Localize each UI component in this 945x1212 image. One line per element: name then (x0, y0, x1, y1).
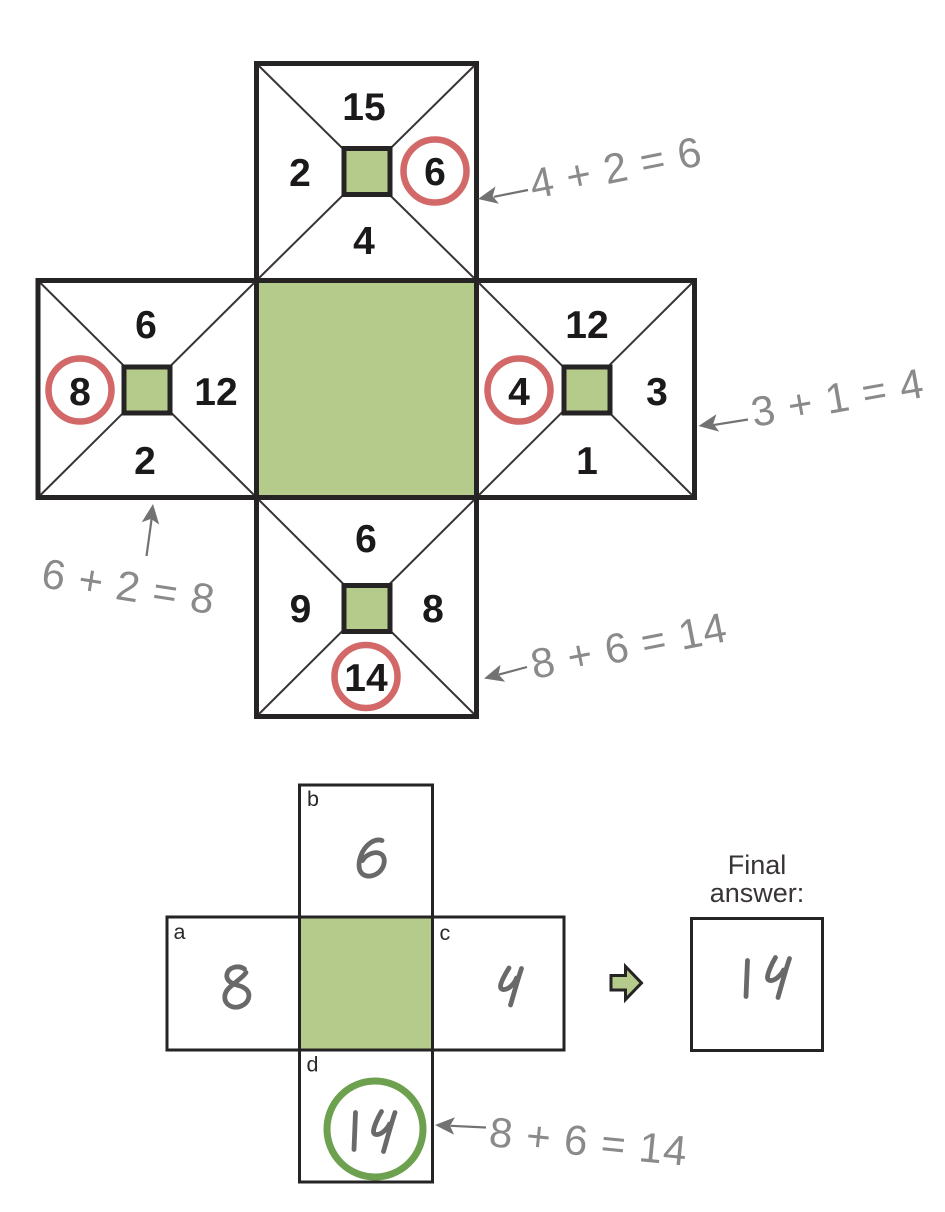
svg-text:answer:: answer: (710, 878, 805, 908)
svg-text:6: 6 (424, 151, 446, 194)
svg-text:8: 8 (69, 371, 91, 414)
svg-text:4 + 2 = 6: 4 + 2 = 6 (526, 127, 707, 207)
svg-text:8 + 6 = 14: 8 + 6 = 14 (527, 603, 731, 687)
svg-text:3 + 1 = 4: 3 + 1 = 4 (747, 359, 927, 436)
svg-text:4: 4 (353, 220, 375, 263)
svg-text:12: 12 (565, 304, 608, 347)
svg-text:6: 6 (135, 304, 157, 347)
svg-text:6: 6 (355, 518, 377, 561)
svg-text:3: 3 (646, 371, 668, 414)
svg-text:a: a (174, 920, 186, 944)
svg-text:2: 2 (134, 440, 156, 483)
svg-text:12: 12 (194, 371, 237, 414)
svg-text:b: b (307, 787, 319, 811)
svg-text:4: 4 (508, 371, 530, 414)
svg-text:8 + 6 = 14: 8 + 6 = 14 (487, 1108, 690, 1175)
svg-text:15: 15 (342, 86, 385, 129)
svg-text:9: 9 (290, 588, 312, 631)
svg-text:8: 8 (422, 588, 444, 631)
svg-text:14: 14 (344, 657, 388, 700)
svg-text:d: d (307, 1053, 319, 1077)
svg-text:6 + 2 = 8: 6 + 2 = 8 (39, 549, 219, 623)
svg-text:Final: Final (728, 850, 787, 880)
svg-text:c: c (440, 921, 451, 945)
svg-text:1: 1 (576, 440, 598, 483)
svg-text:2: 2 (289, 152, 311, 195)
